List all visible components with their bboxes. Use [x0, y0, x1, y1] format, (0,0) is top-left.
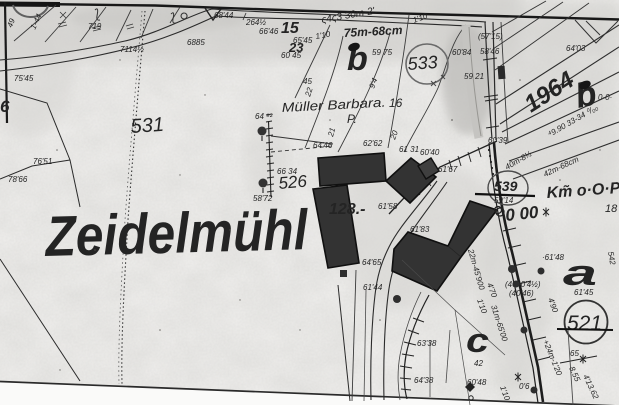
svg-text:264½: 264½: [245, 18, 266, 27]
svg-text:59 75: 59 75: [372, 48, 393, 57]
svg-text:61'67: 61'67: [438, 165, 458, 174]
svg-text:0'6: 0'6: [519, 382, 530, 391]
svg-text:64'46: 64'46: [313, 141, 333, 150]
svg-text:719: 719: [88, 22, 102, 31]
svg-text:6: 6: [0, 97, 10, 116]
svg-text:P.: P.: [347, 112, 357, 126]
svg-text:75'45: 75'45: [14, 74, 34, 83]
svg-text:0·0·: 0·0·: [598, 93, 612, 102]
svg-text:a: a: [563, 252, 597, 293]
svg-text:7114½: 7114½: [120, 45, 144, 54]
svg-text:58'46: 58'46: [480, 47, 500, 56]
svg-text:78'66: 78'66: [8, 175, 28, 184]
svg-text:c: c: [466, 322, 489, 360]
svg-text:59'14: 59'14: [494, 196, 514, 205]
svg-text:62'62: 62'62: [363, 139, 383, 148]
svg-text:18: 18: [605, 203, 618, 215]
svg-text:64'65: 64'65: [362, 258, 382, 267]
svg-text:61'44: 61'44: [363, 283, 383, 292]
svg-text:65: 65: [570, 349, 579, 358]
svg-text:60'40: 60'40: [420, 148, 440, 157]
svg-text:(46'-0'4½): (46'-0'4½): [505, 280, 541, 289]
svg-text:539: 539: [494, 178, 518, 194]
svg-text:16: 16: [389, 96, 403, 110]
svg-text:128.-: 128.-: [329, 201, 365, 218]
svg-text:66 34: 66 34: [277, 167, 298, 176]
svg-text:58'72: 58'72: [253, 194, 273, 203]
svg-text:59 21: 59 21: [464, 72, 484, 81]
svg-text:60 45: 60 45: [281, 51, 302, 60]
svg-text:·61'48: ·61'48: [542, 253, 565, 262]
svg-text:45: 45: [303, 77, 312, 86]
svg-text:64 ⁹²: 64 ⁹²: [255, 112, 273, 121]
svg-text:64'03: 64'03: [566, 44, 586, 53]
svg-text:61'58: 61'58: [378, 202, 398, 211]
svg-text:42: 42: [474, 359, 483, 368]
svg-text:61'45: 61'45: [574, 288, 594, 297]
svg-text:61 31: 61 31: [399, 145, 419, 154]
svg-text:Zeidelmühl: Zeidelmühl: [43, 198, 309, 269]
svg-text:533: 533: [407, 52, 438, 74]
svg-text:64'38: 64'38: [414, 376, 434, 385]
svg-text:68'44: 68'44: [214, 11, 234, 20]
svg-text:6885: 6885: [187, 38, 205, 47]
svg-text:65'45: 65'45: [293, 36, 313, 45]
svg-text:521: 521: [567, 312, 602, 335]
svg-text:(57'15): (57'15): [478, 32, 503, 41]
svg-text:60'84: 60'84: [452, 48, 472, 57]
svg-text:0 00: 0 00: [504, 203, 539, 225]
svg-text:60'39: 60'39: [488, 136, 508, 145]
svg-text:63'38: 63'38: [417, 339, 437, 348]
svg-text:(40'46): (40'46): [509, 289, 534, 298]
svg-text:76'51: 76'51: [33, 157, 52, 166]
svg-text:531: 531: [130, 114, 165, 138]
svg-text:66'46: 66'46: [259, 27, 279, 36]
svg-text:15: 15: [281, 20, 300, 37]
svg-text:61'83: 61'83: [410, 225, 430, 234]
